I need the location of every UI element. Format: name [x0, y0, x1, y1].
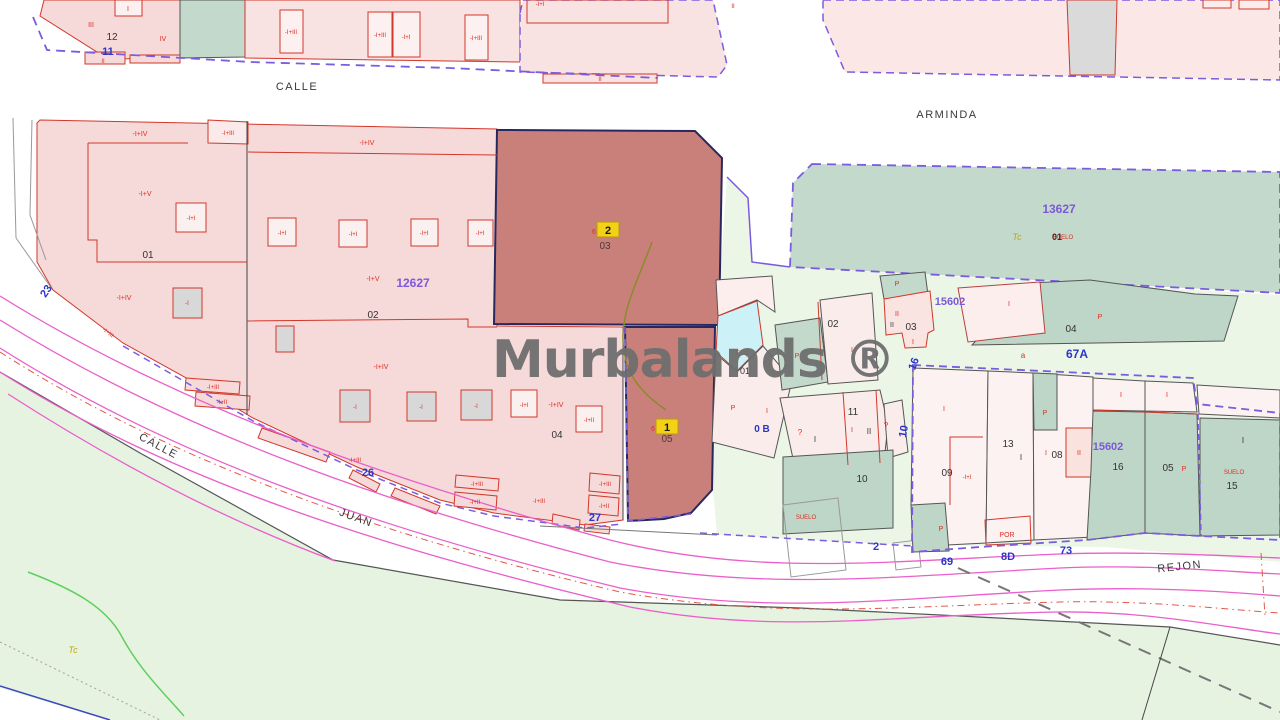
storey-label: P	[939, 526, 944, 533]
storey-label: I	[127, 6, 129, 13]
storey-label: I	[912, 339, 914, 346]
street-number: 10	[897, 424, 911, 438]
suelo-label: SUELO	[796, 515, 817, 521]
storey-label: -I+I	[420, 231, 429, 237]
storey-label: I	[814, 435, 816, 444]
parcel-number: 10	[856, 474, 868, 485]
etq-label: ETQ	[736, 351, 749, 357]
street-number: 8D	[1001, 551, 1015, 563]
street-number: 73	[1060, 545, 1072, 557]
parcel-number: 02	[827, 319, 839, 330]
parcel-number: 05	[661, 434, 673, 445]
storey-label: -I+IV	[117, 295, 132, 302]
storey-label: ?	[798, 428, 803, 437]
storey-label: II	[867, 427, 871, 436]
street-name: JUAN	[338, 507, 375, 530]
parcel-number: 01	[740, 366, 750, 376]
storey-label: II	[1077, 450, 1081, 457]
storey-label: -I+III	[207, 385, 220, 391]
parcel-10-teal	[783, 450, 893, 534]
storey-label: P	[731, 405, 736, 412]
parcel-teal-strip	[1033, 373, 1057, 430]
storey-label: -I+V	[366, 276, 379, 283]
parcel-02-mid	[820, 293, 878, 384]
parcel-top-b-teal	[180, 0, 245, 58]
soil-code: Tc	[1012, 232, 1022, 242]
storey-label: -I+I	[349, 232, 358, 238]
storey-label: II	[101, 59, 105, 65]
parcel-number: 15	[1226, 481, 1238, 492]
parcel-top-d	[520, 0, 727, 77]
storey-label: -I+III	[470, 36, 483, 42]
parcel-number: 02	[367, 310, 379, 321]
storey-label: I	[943, 406, 945, 413]
parcel-number: 08	[1051, 450, 1063, 461]
storey-label: I	[1242, 436, 1244, 445]
marker-1-label[interactable]: 1	[664, 422, 670, 434]
parcel-13	[986, 371, 1034, 543]
parcel-16-teal	[1087, 411, 1145, 540]
cadastral-map-canvas[interactable]: IIII12IV11II-I+III-I+III-I+I-I+III-I+III…	[0, 0, 1280, 720]
storey-label: -I+IV	[374, 364, 389, 371]
street-number: 26	[362, 467, 374, 479]
soil-code: Tc	[68, 645, 78, 655]
storey-label: ?	[884, 421, 889, 430]
storey-label: -I+I	[963, 475, 972, 481]
storey-label: IV	[160, 36, 167, 43]
storey-label: -I	[419, 405, 423, 411]
parcel-number: 13	[1002, 439, 1014, 450]
storey-label: -I+II	[217, 400, 228, 406]
parcel-number: 04	[551, 430, 563, 441]
cadastral-ref: 15602	[935, 296, 966, 308]
storey-label: I	[1166, 392, 1168, 399]
storey-label: -I+I	[187, 216, 196, 222]
parcel-number: 05	[1162, 463, 1174, 474]
storey-label: -I+III	[349, 458, 362, 464]
storey-label: I	[851, 347, 853, 354]
building-box	[1239, 0, 1269, 9]
street-number: 11	[102, 46, 114, 58]
storey-label: I	[851, 427, 853, 434]
parcel-15-teal	[1200, 418, 1280, 536]
storey-label: -I+I	[278, 231, 287, 237]
parcel-number: 03	[905, 322, 917, 333]
storey-label: I	[766, 408, 768, 415]
street-number: 69	[941, 556, 953, 568]
parcel-number: 09	[941, 468, 953, 479]
cadastral-ref: 12627	[396, 276, 430, 290]
cadastral-map-stage: IIII12IV11II-I+III-I+III-I+I-I+III-I+III…	[0, 0, 1280, 720]
storey-label: I	[1008, 301, 1010, 308]
parcel-05b-teal	[1145, 412, 1200, 536]
storey-label: a	[1021, 351, 1026, 360]
building-box	[1203, 0, 1231, 8]
gray-stripe	[1067, 0, 1117, 75]
parcel-number: 03	[599, 241, 611, 252]
storey-label: I	[1020, 453, 1022, 462]
street-name: ARMINDA	[916, 109, 977, 121]
storey-label: P	[1043, 410, 1048, 417]
street-number: 2	[873, 541, 879, 553]
storey-label: -I+III	[285, 30, 298, 36]
parcel-small	[1093, 378, 1145, 411]
street-name: CALLE	[276, 81, 318, 93]
storey-label: -I+I	[536, 2, 545, 8]
storey-label: II	[731, 4, 735, 10]
parcel-number: 16	[1112, 462, 1124, 473]
storey-label: -I+IV	[360, 140, 375, 147]
parcel-teal-small	[775, 318, 828, 390]
storey-label: -I+III	[222, 131, 235, 137]
cadastral-ref: 15602	[1093, 441, 1124, 453]
storey-label: -I+IV	[133, 131, 148, 138]
utility-dashdot-red	[1261, 553, 1265, 616]
street-number: 67A	[1066, 347, 1088, 361]
suelo-label: SUELO	[1224, 470, 1245, 476]
storey-label: II	[895, 311, 899, 318]
street-number: 27	[589, 512, 601, 524]
storey-label: -I	[474, 404, 478, 410]
storey-label: I	[1045, 450, 1047, 457]
storey-label: P	[795, 353, 800, 360]
parcel-small	[958, 282, 1045, 342]
storey-label: -I	[353, 405, 357, 411]
cadastral-ref: 13627	[1042, 202, 1076, 216]
parcel-top-e	[823, 0, 1280, 80]
por-label: POR	[999, 532, 1014, 539]
storey-label: -I+I	[520, 403, 529, 409]
storey-label: -I+III	[374, 33, 387, 39]
parcel-number: 01	[142, 250, 154, 261]
storey-label: -I+III	[599, 482, 612, 488]
parcel-small	[1197, 385, 1280, 418]
storey-label: -I+IV	[549, 402, 564, 409]
storey-label: II	[598, 77, 602, 83]
building-box-gray	[276, 326, 294, 352]
red-mark: 6	[592, 229, 596, 236]
storey-label: P	[1098, 314, 1103, 321]
parcel-number: 04	[1065, 324, 1077, 335]
street-number: 0 B	[754, 424, 770, 435]
storey-label: -I+II	[599, 504, 610, 510]
marker-2-label[interactable]: 2	[605, 225, 611, 237]
storey-label: -I+II	[584, 418, 595, 424]
storey-label: P	[1182, 466, 1187, 473]
storey-label: -I+II	[470, 500, 481, 506]
storey-label: -I+I	[476, 231, 485, 237]
parcel-number: 12	[106, 32, 118, 43]
red-mark: 6	[651, 426, 655, 433]
storey-label: -I+III	[533, 499, 546, 505]
storey-label: -I+I	[402, 35, 411, 41]
street-name: REJON	[1157, 559, 1203, 576]
parcel-number: 11	[848, 407, 859, 418]
storey-label: -I	[185, 301, 189, 307]
storey-label: III	[88, 22, 94, 29]
storey-label: II	[890, 322, 894, 329]
storey-label: I	[1120, 392, 1122, 399]
storey-label: -I+III	[471, 482, 484, 488]
storey-label: -I+V	[138, 191, 151, 198]
parcel-small	[1145, 381, 1197, 412]
parcel-number: 01	[1052, 232, 1062, 242]
storey-label: P	[895, 281, 900, 288]
